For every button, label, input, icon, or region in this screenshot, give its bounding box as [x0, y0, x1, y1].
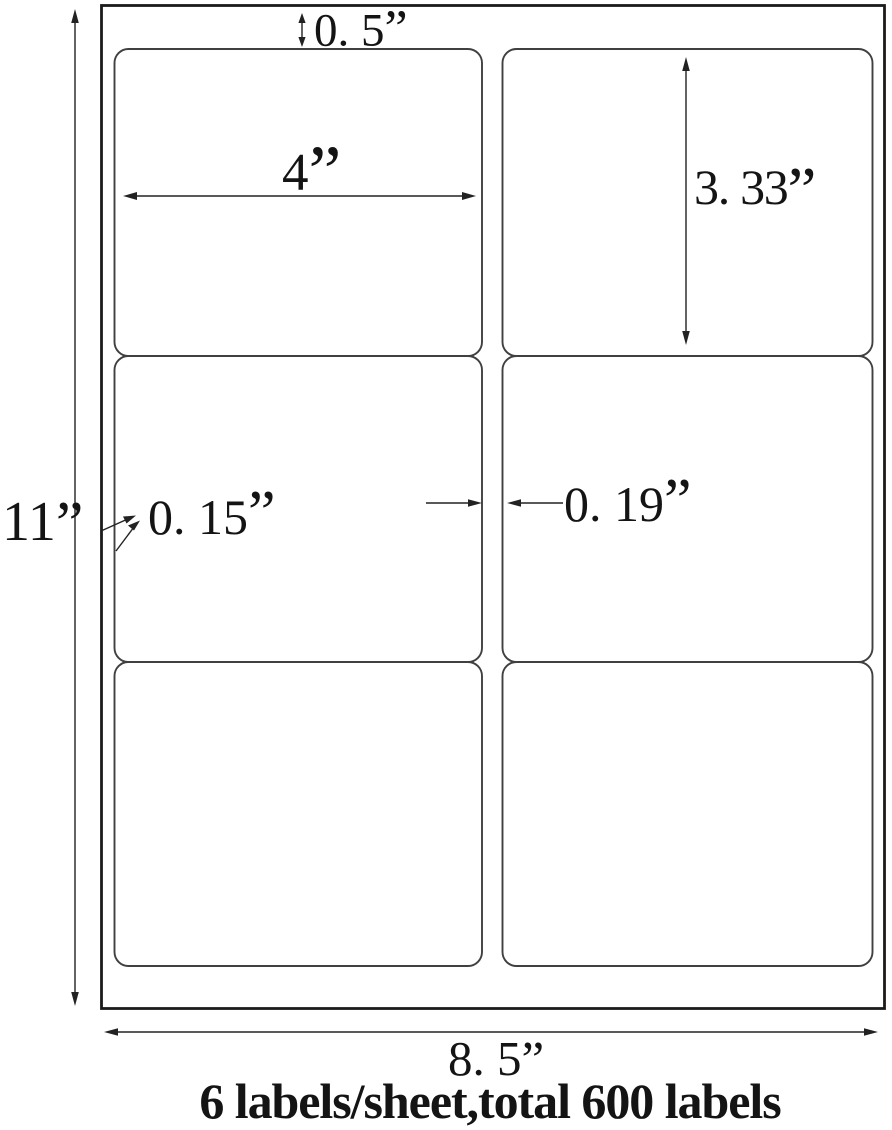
svg-text:4”: 4”: [282, 131, 341, 213]
svg-text:6 labels/sheet,total 600 label: 6 labels/sheet,total 600 labels: [199, 1073, 781, 1129]
svg-text:0. 5”: 0. 5”: [314, 1, 408, 58]
svg-text:11”: 11”: [2, 490, 83, 558]
svg-text:0. 15”: 0. 15”: [148, 479, 276, 547]
svg-text:0. 19”: 0. 19”: [564, 467, 692, 535]
